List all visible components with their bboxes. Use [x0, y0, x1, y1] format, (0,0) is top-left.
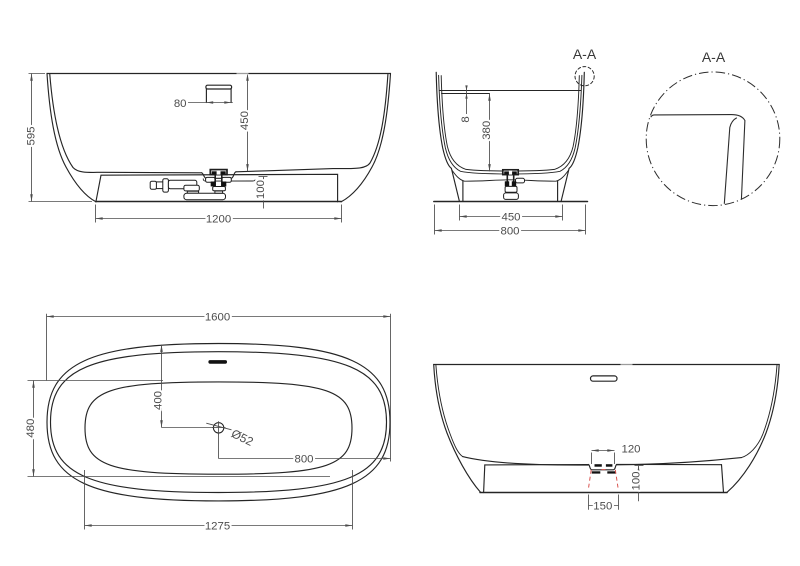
- svg-text:Ø52: Ø52: [229, 426, 256, 449]
- svg-text:800: 800: [500, 226, 519, 238]
- svg-text:1600: 1600: [205, 312, 230, 324]
- svg-text:150: 150: [593, 501, 612, 513]
- svg-text:1275: 1275: [205, 521, 230, 533]
- svg-text:8: 8: [460, 116, 472, 122]
- svg-text:A-A: A-A: [573, 46, 597, 62]
- svg-text:450: 450: [501, 212, 520, 224]
- svg-text:100: 100: [631, 471, 643, 490]
- svg-text:100: 100: [255, 180, 267, 199]
- svg-text:120: 120: [622, 443, 641, 455]
- svg-text:800: 800: [294, 454, 313, 466]
- svg-text:450: 450: [239, 111, 251, 130]
- svg-text:1200: 1200: [206, 214, 231, 226]
- svg-text:A-A: A-A: [702, 49, 726, 65]
- svg-text:595: 595: [26, 126, 38, 145]
- svg-text:80: 80: [174, 98, 187, 110]
- svg-text:400: 400: [153, 391, 165, 410]
- svg-text:380: 380: [481, 121, 493, 140]
- svg-text:480: 480: [25, 419, 37, 438]
